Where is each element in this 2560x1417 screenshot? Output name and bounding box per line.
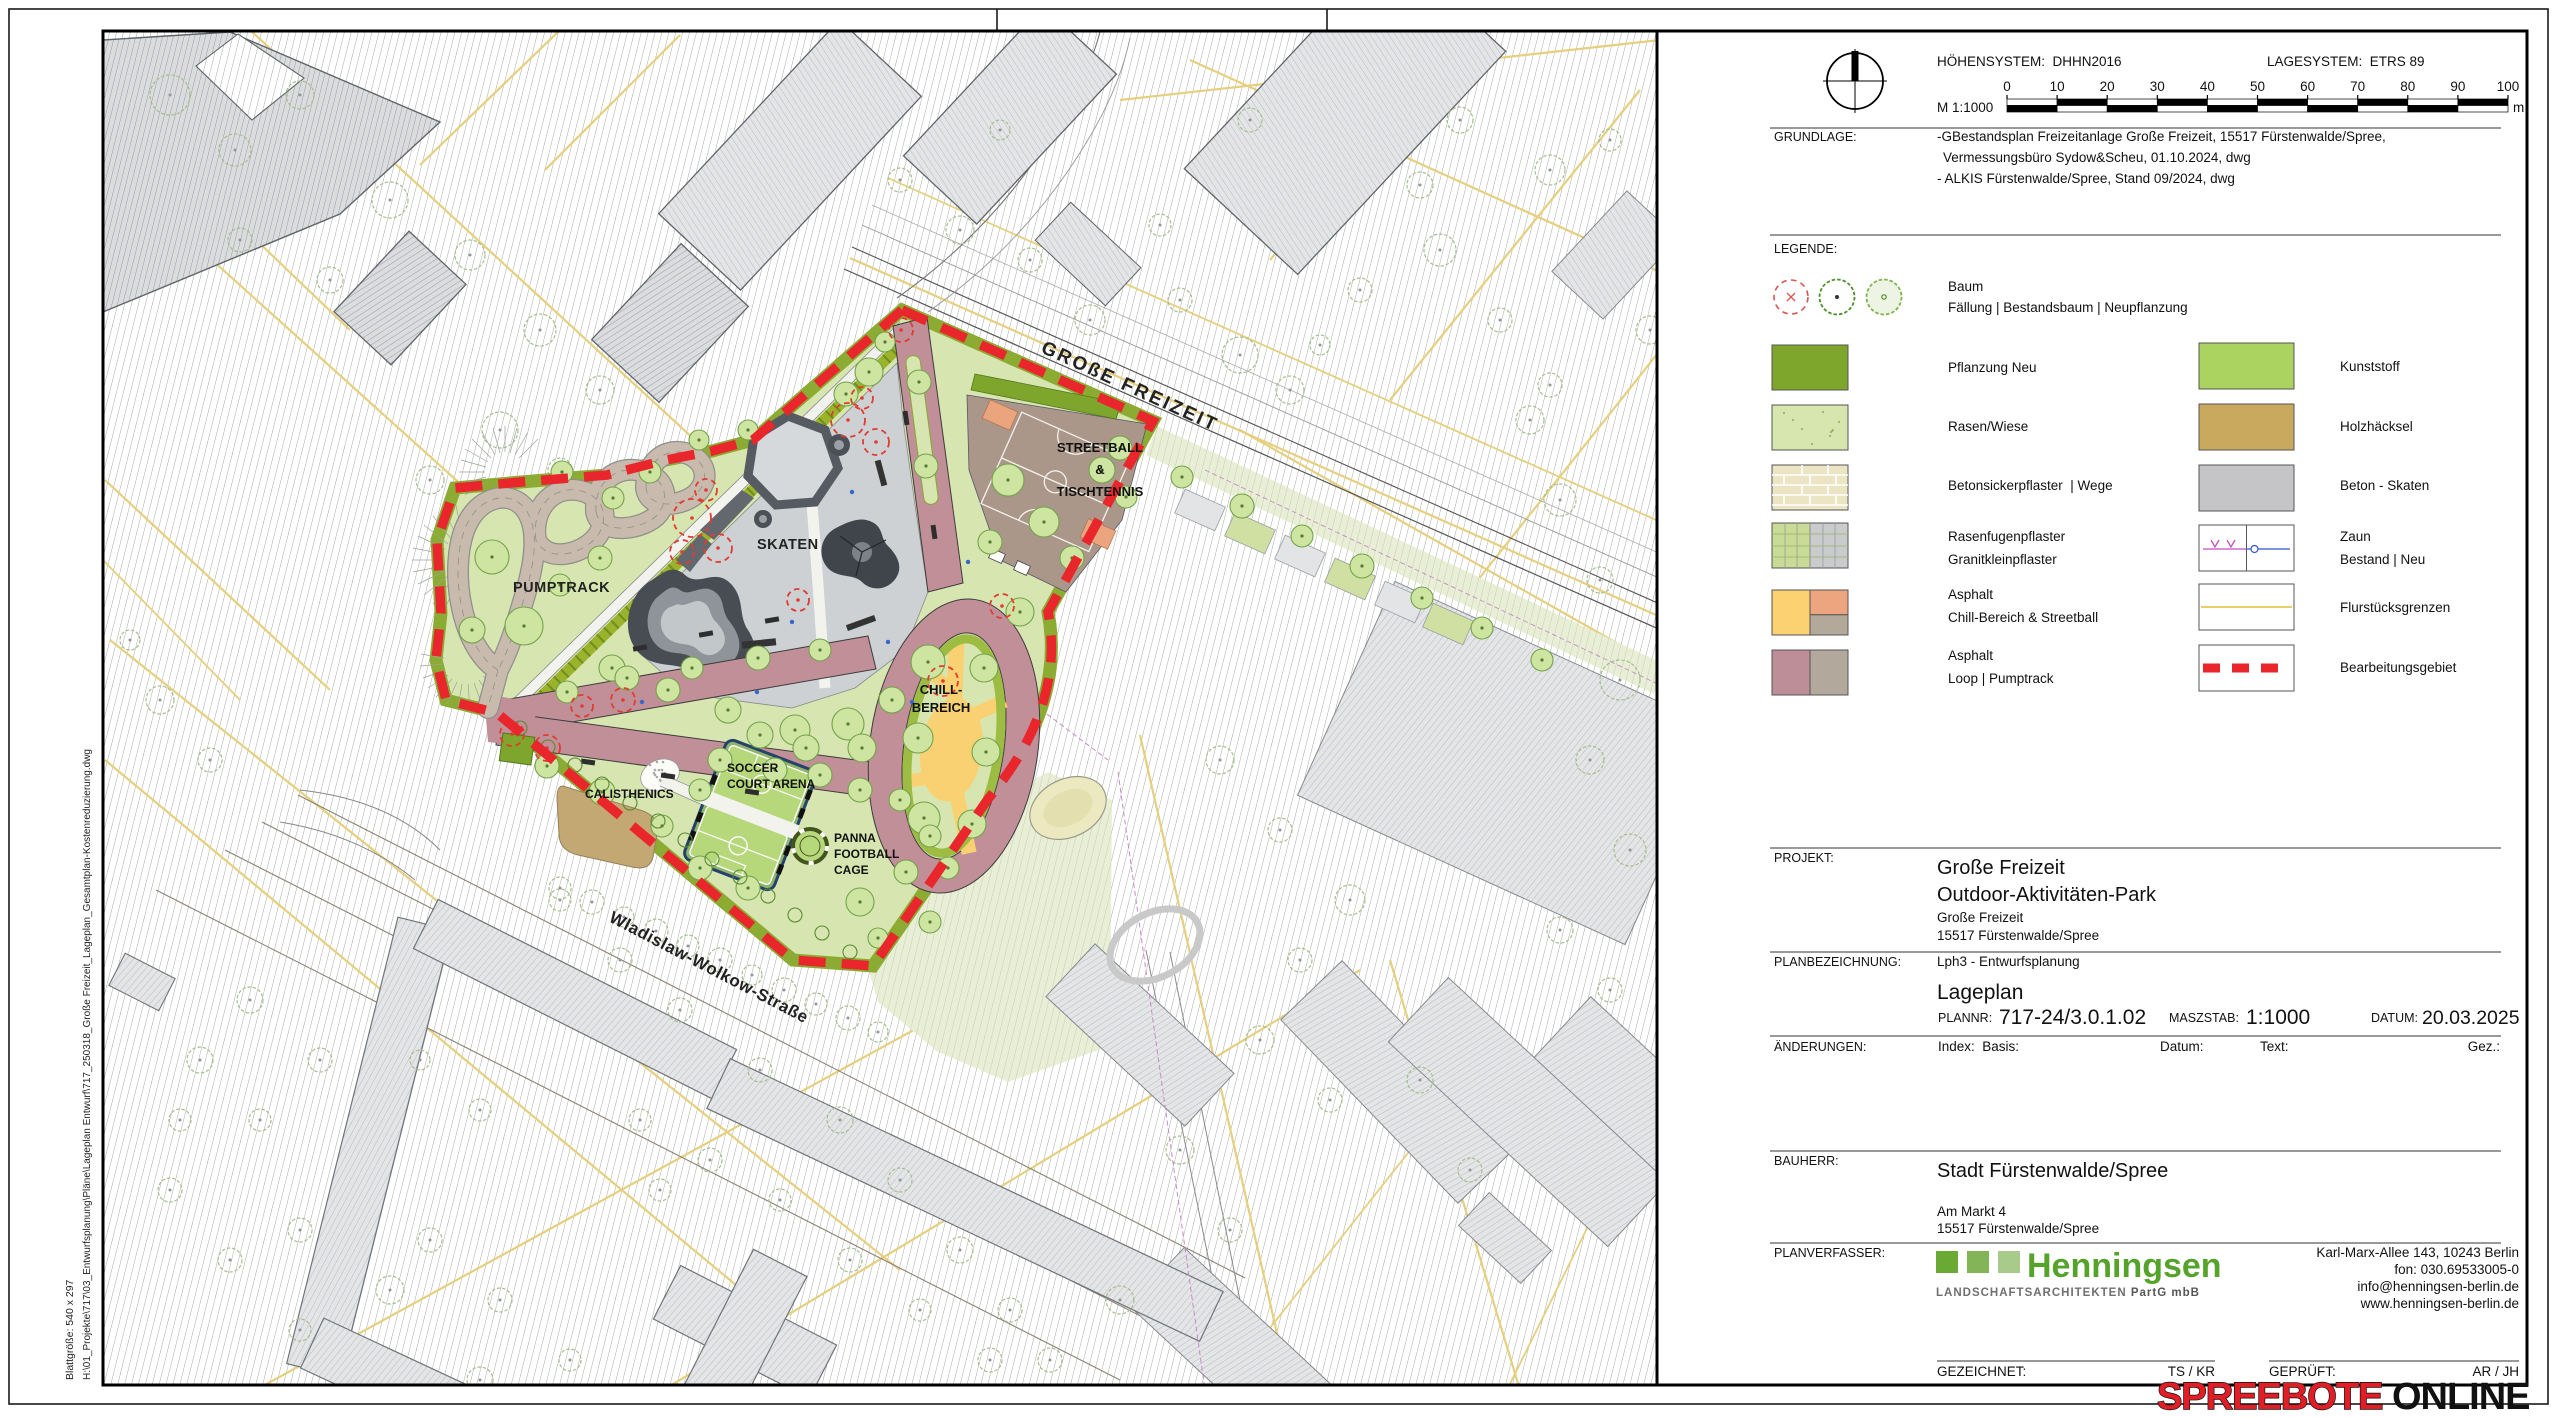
svg-text:Blattgröße: 540 x 297: Blattgröße: 540 x 297 [64, 1279, 76, 1380]
svg-text:SPREEBOTE ONLINE: SPREEBOTE ONLINE [2157, 1376, 2530, 1417]
svg-text:GEZEICHNET:: GEZEICHNET: [1937, 1364, 2026, 1379]
svg-text:100: 100 [2497, 79, 2520, 94]
svg-text:m: m [2513, 100, 2524, 115]
svg-text:Kunststoff: Kunststoff [2340, 359, 2400, 374]
svg-text:PANNA: PANNA [834, 831, 876, 845]
svg-text:Rasen/Wiese: Rasen/Wiese [1948, 419, 2028, 434]
svg-text:LANDSCHAFTSARCHITEKTEN PartG m: LANDSCHAFTSARCHITEKTEN PartG mbB [1936, 1287, 2200, 1299]
svg-text:-GBestandsplan Freizeitanlage: -GBestandsplan Freizeitanlage Große Frei… [1937, 129, 2386, 144]
svg-text:- ALKIS Fürstenwalde/Spree, St: - ALKIS Fürstenwalde/Spree, Stand 09/202… [1937, 171, 2235, 186]
svg-text:15517 Fürstenwalde/Spree: 15517 Fürstenwalde/Spree [1937, 928, 2099, 943]
svg-text:Bearbeitungsgebiet: Bearbeitungsgebiet [2340, 660, 2457, 675]
svg-text:HÖHENSYSTEM: DHHN2016: HÖHENSYSTEM: DHHN2016 [1937, 54, 2122, 69]
svg-text:www.henningsen-berlin.de: www.henningsen-berlin.de [2360, 1296, 2519, 1311]
svg-text:Index: Basis:: Index: Basis: [1938, 1039, 2019, 1054]
svg-text:fon: 030.69533005-0: fon: 030.69533005-0 [2394, 1262, 2519, 1277]
svg-text:90: 90 [2450, 79, 2465, 94]
svg-text:Granitkleinpflaster: Granitkleinpflaster [1948, 552, 2057, 567]
svg-text:Beton - Skaten: Beton - Skaten [2340, 478, 2429, 493]
svg-text:Flurstücksgrenzen: Flurstücksgrenzen [2340, 600, 2450, 615]
svg-text:STREETBALL: STREETBALL [1057, 440, 1143, 455]
svg-text:PLANBEZEICHNUNG:: PLANBEZEICHNUNG: [1774, 955, 1901, 969]
svg-text:Asphalt: Asphalt [1948, 648, 1993, 663]
svg-text:BEREICH: BEREICH [912, 700, 971, 715]
svg-text:20: 20 [2100, 79, 2115, 94]
svg-text:ÄNDERUNGEN:: ÄNDERUNGEN: [1774, 1040, 1866, 1054]
svg-text:Bestand | Neu: Bestand | Neu [2340, 552, 2425, 567]
svg-text:Asphalt: Asphalt [1948, 587, 1993, 602]
svg-text:Holzhäcksel: Holzhäcksel [2340, 419, 2413, 434]
svg-text:CALISTHENICS: CALISTHENICS [585, 787, 674, 801]
svg-text:Karl-Marx-Allee 143, 10243 Ber: Karl-Marx-Allee 143, 10243 Berlin [2316, 1245, 2519, 1260]
svg-text:0: 0 [2003, 79, 2011, 94]
svg-text:Große Freizeit: Große Freizeit [1937, 857, 2065, 879]
svg-text:Henningsen: Henningsen [2027, 1247, 2222, 1285]
svg-text:50: 50 [2250, 79, 2265, 94]
svg-text:Stadt Fürstenwalde/Spree: Stadt Fürstenwalde/Spree [1937, 1160, 2168, 1182]
svg-text:DATUM:: DATUM: [2371, 1011, 2418, 1025]
svg-text:Chill-Bereich & Streetball: Chill-Bereich & Streetball [1948, 610, 2098, 625]
svg-text:60: 60 [2300, 79, 2315, 94]
svg-text:Lph3 - Entwurfsplanung: Lph3 - Entwurfsplanung [1937, 954, 2080, 969]
svg-text:H:\01_Projekte\717\03_Entwurfs: H:\01_Projekte\717\03_Entwurfsplanung\Pl… [82, 749, 93, 1380]
svg-text:Am Markt 4: Am Markt 4 [1937, 1204, 2007, 1219]
svg-text:70: 70 [2350, 79, 2365, 94]
svg-text:20.03.2025: 20.03.2025 [2422, 1007, 2520, 1029]
svg-text:Pflanzung Neu: Pflanzung Neu [1948, 360, 2037, 375]
svg-text:BAUHERR:: BAUHERR: [1774, 1154, 1839, 1168]
svg-text:1:1000: 1:1000 [2246, 1006, 2310, 1029]
svg-text:PUMPTRACK: PUMPTRACK [513, 580, 610, 596]
svg-text:LAGESYSTEM: ETRS 89: LAGESYSTEM: ETRS 89 [2267, 54, 2425, 69]
svg-text:FOOTBALL: FOOTBALL [834, 847, 899, 861]
svg-text:Datum:: Datum: [2160, 1039, 2204, 1054]
svg-text:COURT ARENA: COURT ARENA [727, 777, 816, 791]
svg-text:PLANVERFASSER:: PLANVERFASSER: [1774, 1246, 1885, 1260]
svg-text:TISCHTENNIS: TISCHTENNIS [1057, 484, 1144, 499]
svg-text:Betonsickerpflaster | Wege: Betonsickerpflaster | Wege [1948, 478, 2113, 493]
svg-text:GRUNDLAGE:: GRUNDLAGE: [1774, 130, 1857, 144]
svg-text:LEGENDE:: LEGENDE: [1774, 242, 1837, 256]
svg-text:Outdoor-Aktivitäten-Park: Outdoor-Aktivitäten-Park [1937, 884, 2157, 906]
svg-text:Text:: Text: [2260, 1039, 2289, 1054]
svg-text:Loop | Pumptrack: Loop | Pumptrack [1948, 671, 2054, 686]
svg-text:SOCCER: SOCCER [727, 761, 779, 775]
svg-text:Gez.:: Gez.: [2468, 1039, 2500, 1054]
svg-text:Fällung | Bestandsbaum | Neupf: Fällung | Bestandsbaum | Neupflanzung [1948, 300, 2188, 315]
svg-text:info@henningsen-berlin.de: info@henningsen-berlin.de [2357, 1279, 2519, 1294]
svg-text:10: 10 [2050, 79, 2065, 94]
svg-text:Lageplan: Lageplan [1937, 981, 2023, 1004]
svg-text:CAGE: CAGE [834, 863, 869, 877]
svg-text:Baum: Baum [1948, 279, 1983, 294]
svg-text:SKATEN: SKATEN [757, 537, 819, 553]
svg-text:15517 Fürstenwalde/Spree: 15517 Fürstenwalde/Spree [1937, 1221, 2099, 1236]
svg-text:40: 40 [2200, 79, 2215, 94]
svg-text:Rasenfugenpflaster: Rasenfugenpflaster [1948, 529, 2066, 544]
svg-text:Große Freizeit: Große Freizeit [1937, 910, 2024, 925]
svg-text:PLANNR:: PLANNR: [1938, 1011, 1992, 1025]
svg-text:PROJEKT:: PROJEKT: [1774, 851, 1834, 865]
svg-text:80: 80 [2400, 79, 2415, 94]
svg-text:&: & [1095, 462, 1104, 477]
svg-text:MASZSTAB:: MASZSTAB: [2169, 1011, 2239, 1025]
svg-text:M 1:1000: M 1:1000 [1937, 100, 1993, 115]
svg-text:CHILL-: CHILL- [920, 682, 963, 697]
svg-text:Zaun: Zaun [2340, 529, 2371, 544]
svg-text:Vermessungsbüro Sydow&Scheu, 0: Vermessungsbüro Sydow&Scheu, 01.10.2024,… [1943, 150, 2251, 165]
svg-text:717-24/3.0.1.02: 717-24/3.0.1.02 [1999, 1006, 2146, 1029]
svg-text:30: 30 [2150, 79, 2165, 94]
